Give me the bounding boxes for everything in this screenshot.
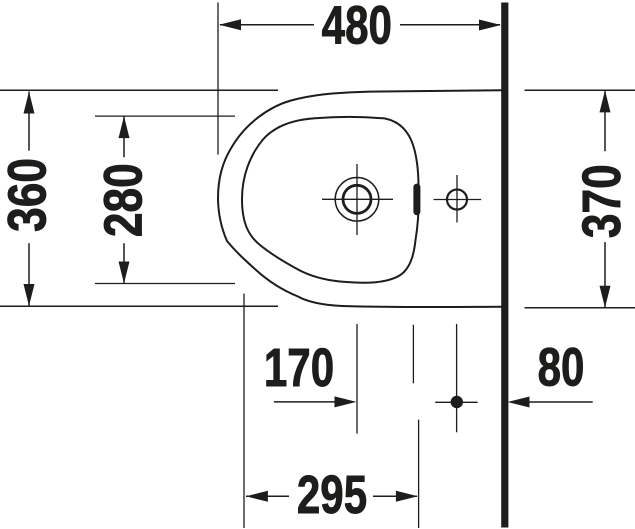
svg-text:280: 280 xyxy=(93,163,153,237)
svg-text:370: 370 xyxy=(572,164,632,238)
svg-text:480: 480 xyxy=(322,0,392,56)
svg-text:170: 170 xyxy=(264,338,334,398)
svg-text:295: 295 xyxy=(297,465,367,525)
svg-text:360: 360 xyxy=(0,158,58,232)
svg-text:80: 80 xyxy=(538,338,585,398)
